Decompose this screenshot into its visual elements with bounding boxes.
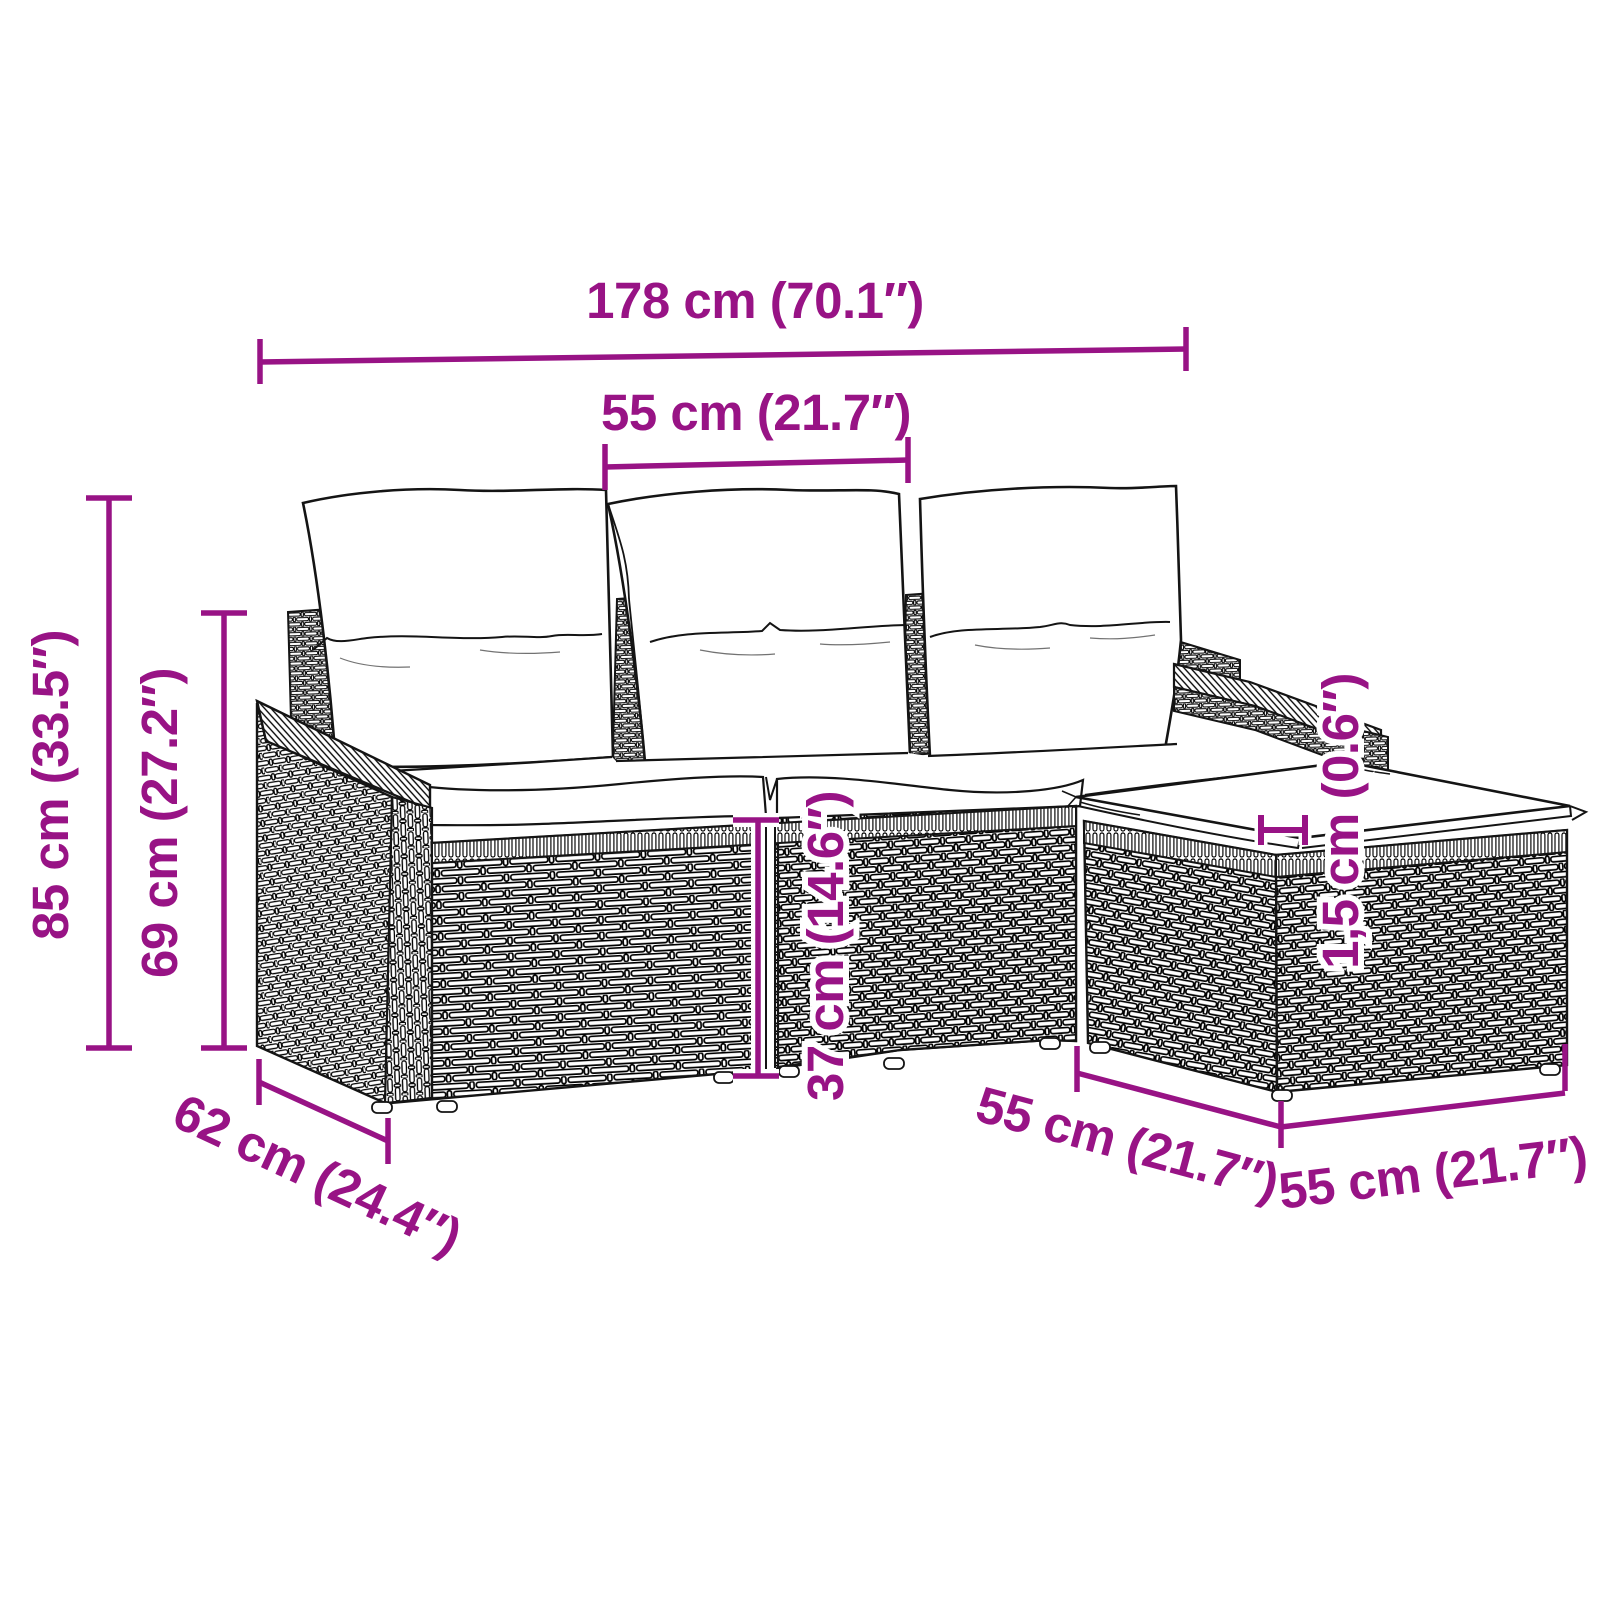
svg-text:85 cm (33.5″): 85 cm (33.5″): [22, 630, 79, 940]
svg-text:37 cm (14.6″): 37 cm (14.6″): [797, 791, 854, 1101]
svg-text:1,5 cm (0.6″): 1,5 cm (0.6″): [1312, 673, 1369, 969]
svg-text:178 cm (70.1″): 178 cm (70.1″): [586, 272, 924, 329]
svg-text:69 cm (27.2″): 69 cm (27.2″): [131, 668, 188, 978]
svg-text:55 cm (21.7″): 55 cm (21.7″): [601, 384, 911, 441]
